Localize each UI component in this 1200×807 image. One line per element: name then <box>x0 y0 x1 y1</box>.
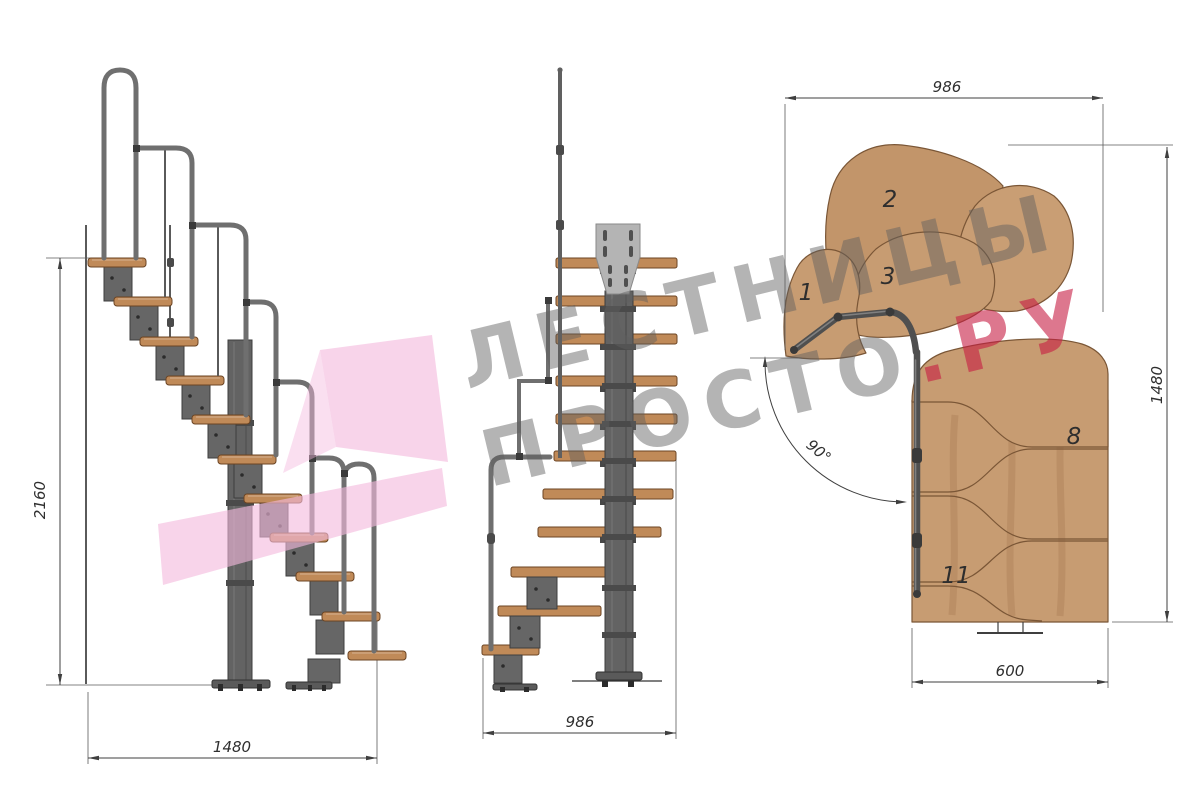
tread <box>244 494 302 503</box>
step-number-8: 8 <box>1067 424 1082 450</box>
tread <box>511 567 608 577</box>
tread <box>166 376 224 385</box>
step-number-2: 2 <box>883 187 898 213</box>
lower-support-side <box>286 581 344 691</box>
dimension-plan-exit: 600 <box>912 628 1108 688</box>
tread <box>348 651 406 660</box>
dim-label-plan-depth: 1480 <box>1148 366 1166 404</box>
dim-label-front-width: 986 <box>566 713 595 731</box>
tread <box>140 337 198 346</box>
side-view: 2160 1480 <box>31 70 406 764</box>
tread <box>322 612 380 621</box>
tread <box>218 455 276 464</box>
baseplate-plan <box>977 622 1043 633</box>
dim-label-plan-exit: 600 <box>996 662 1025 680</box>
stair-modules-front <box>493 577 557 692</box>
dim-label-side-height: 2160 <box>31 481 49 519</box>
staircase-drawing-sheet: 2160 1480 <box>0 0 1200 807</box>
step-number-11: 11 <box>941 563 970 589</box>
dim-label-plan-width: 986 <box>933 78 962 96</box>
dim-label-side-run: 1480 <box>213 738 251 756</box>
tread <box>114 297 172 306</box>
tread <box>270 533 328 542</box>
tread <box>538 527 661 537</box>
tread <box>192 415 250 424</box>
